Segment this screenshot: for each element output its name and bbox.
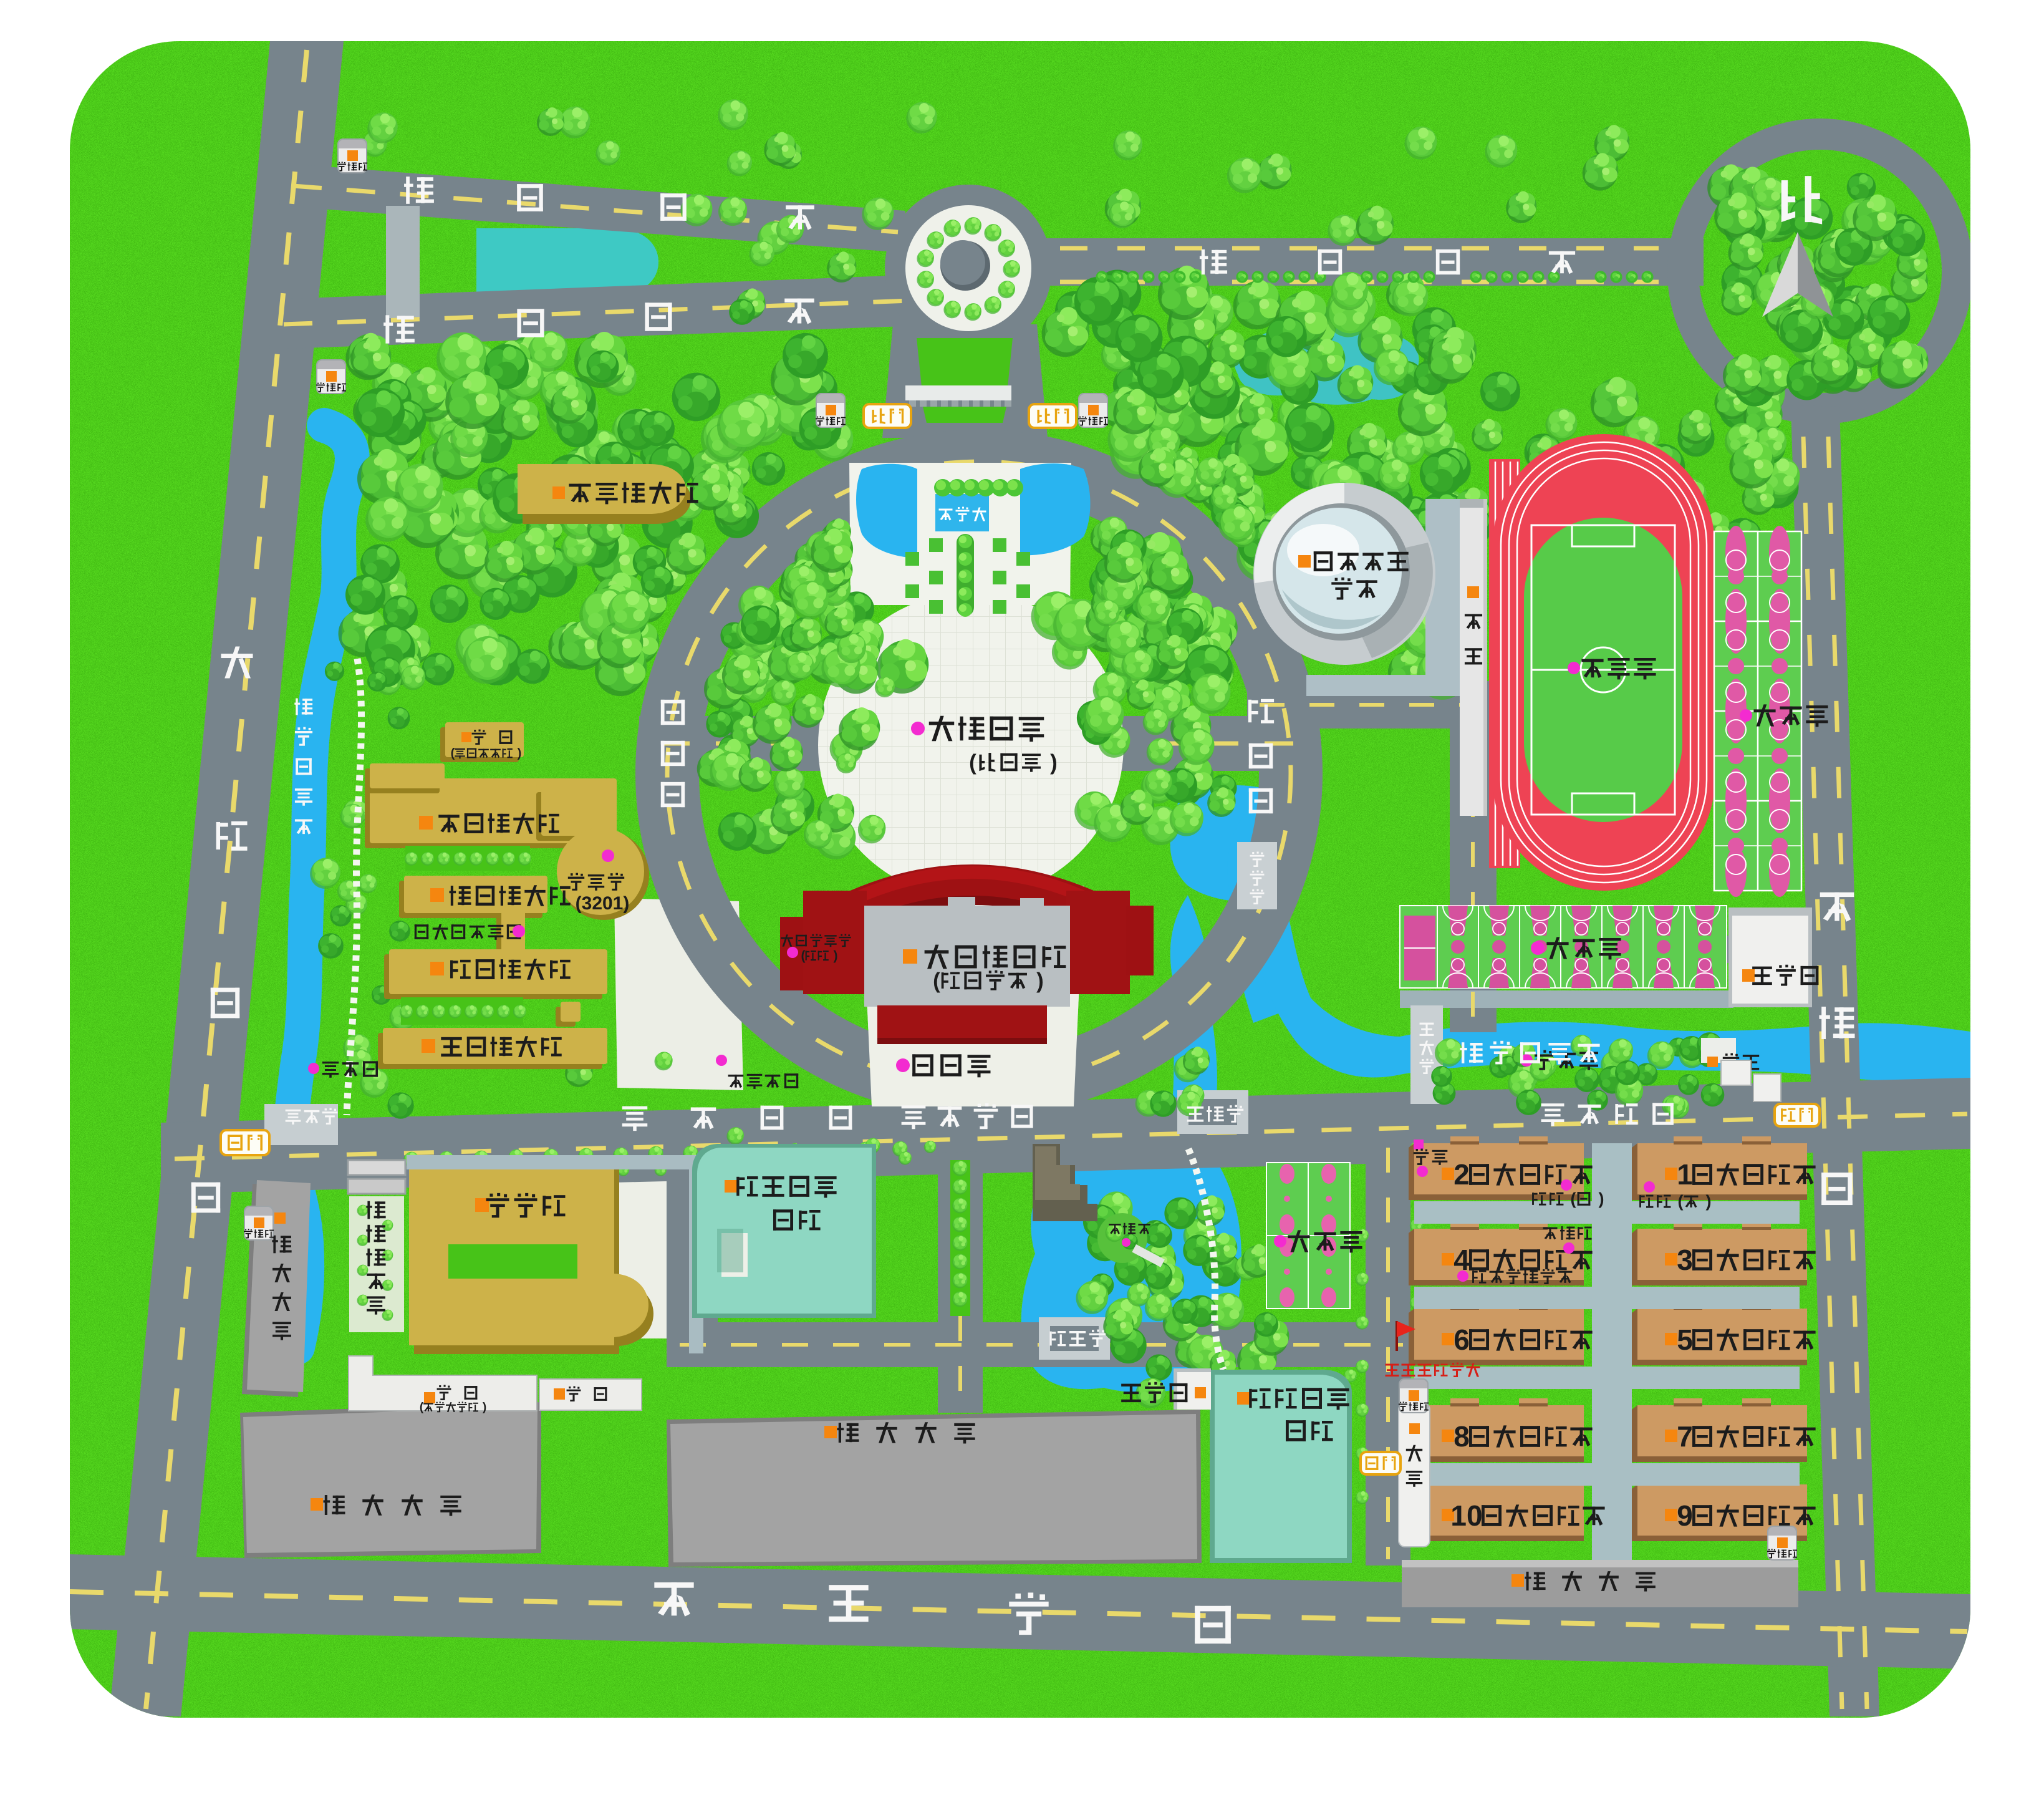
- svg-text:3: 3: [1677, 1244, 1693, 1276]
- svg-text:(: (: [451, 747, 455, 760]
- svg-text:): ): [1599, 1189, 1604, 1208]
- svg-text:(: (: [801, 949, 806, 963]
- svg-text:8: 8: [1453, 1420, 1470, 1453]
- svg-text:7: 7: [1677, 1420, 1693, 1453]
- svg-text:(: (: [933, 969, 940, 993]
- svg-text:(3201): (3201): [576, 893, 630, 914]
- svg-text:6: 6: [1453, 1324, 1470, 1356]
- svg-text:(: (: [1571, 1189, 1576, 1208]
- svg-text:10: 10: [1450, 1499, 1482, 1532]
- svg-text:): ): [834, 949, 838, 963]
- svg-text:(: (: [969, 750, 976, 775]
- svg-text:5: 5: [1677, 1324, 1693, 1356]
- svg-text:2: 2: [1453, 1158, 1470, 1191]
- svg-text:): ): [1706, 1192, 1712, 1211]
- svg-text:): ): [1036, 969, 1044, 993]
- svg-text:): ): [1050, 750, 1058, 775]
- svg-text:(: (: [420, 1401, 424, 1414]
- svg-text:): ): [518, 747, 522, 760]
- svg-text:1: 1: [1677, 1158, 1693, 1191]
- svg-text:(: (: [1678, 1192, 1684, 1211]
- svg-text:9: 9: [1677, 1499, 1693, 1532]
- svg-text:): ): [483, 1401, 486, 1414]
